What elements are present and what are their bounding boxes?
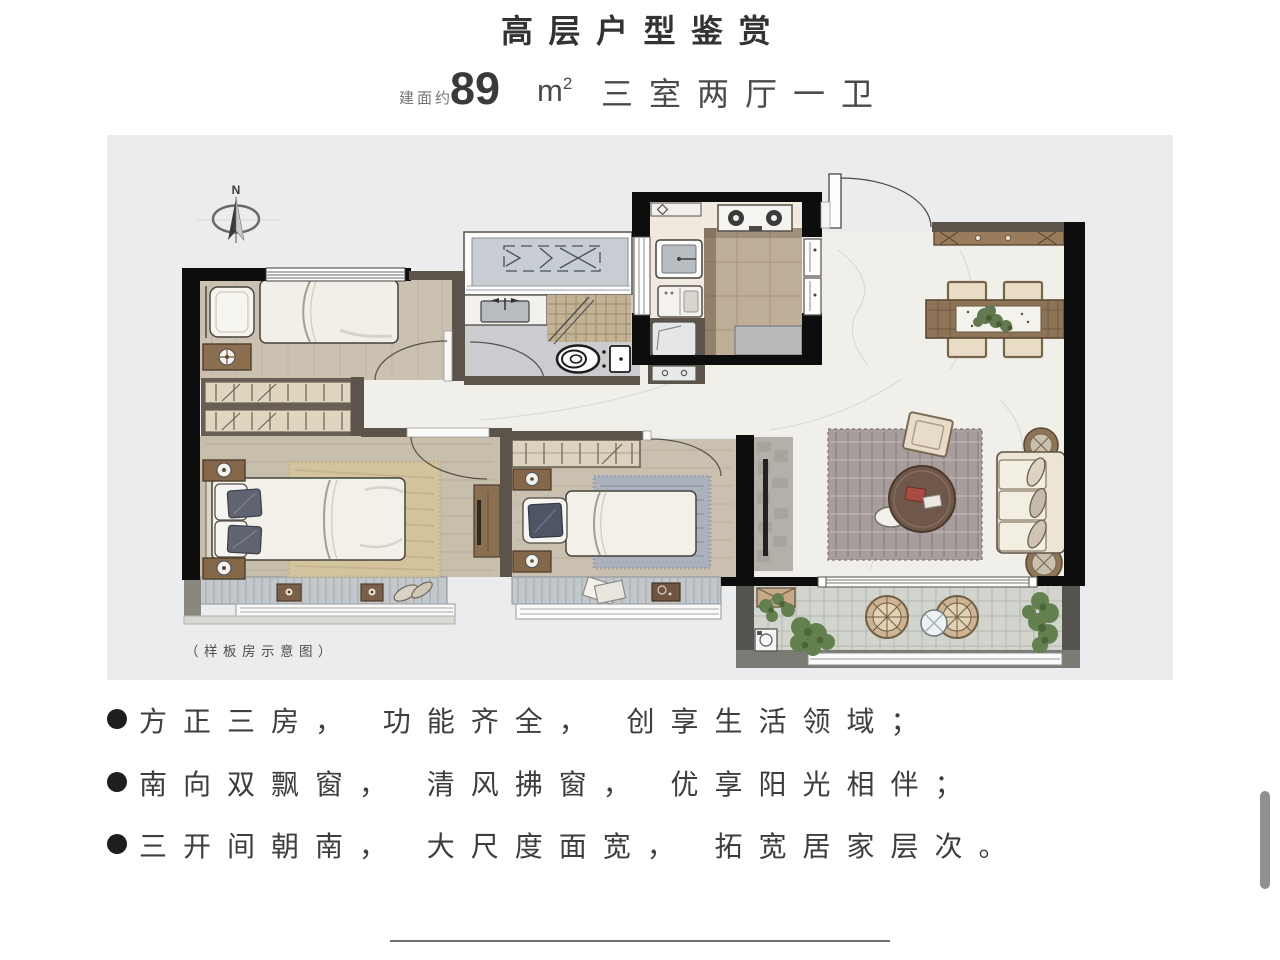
svg-text:N: N — [232, 183, 241, 197]
svg-text:（样板房示意图）: （样板房示意图） — [185, 643, 337, 659]
